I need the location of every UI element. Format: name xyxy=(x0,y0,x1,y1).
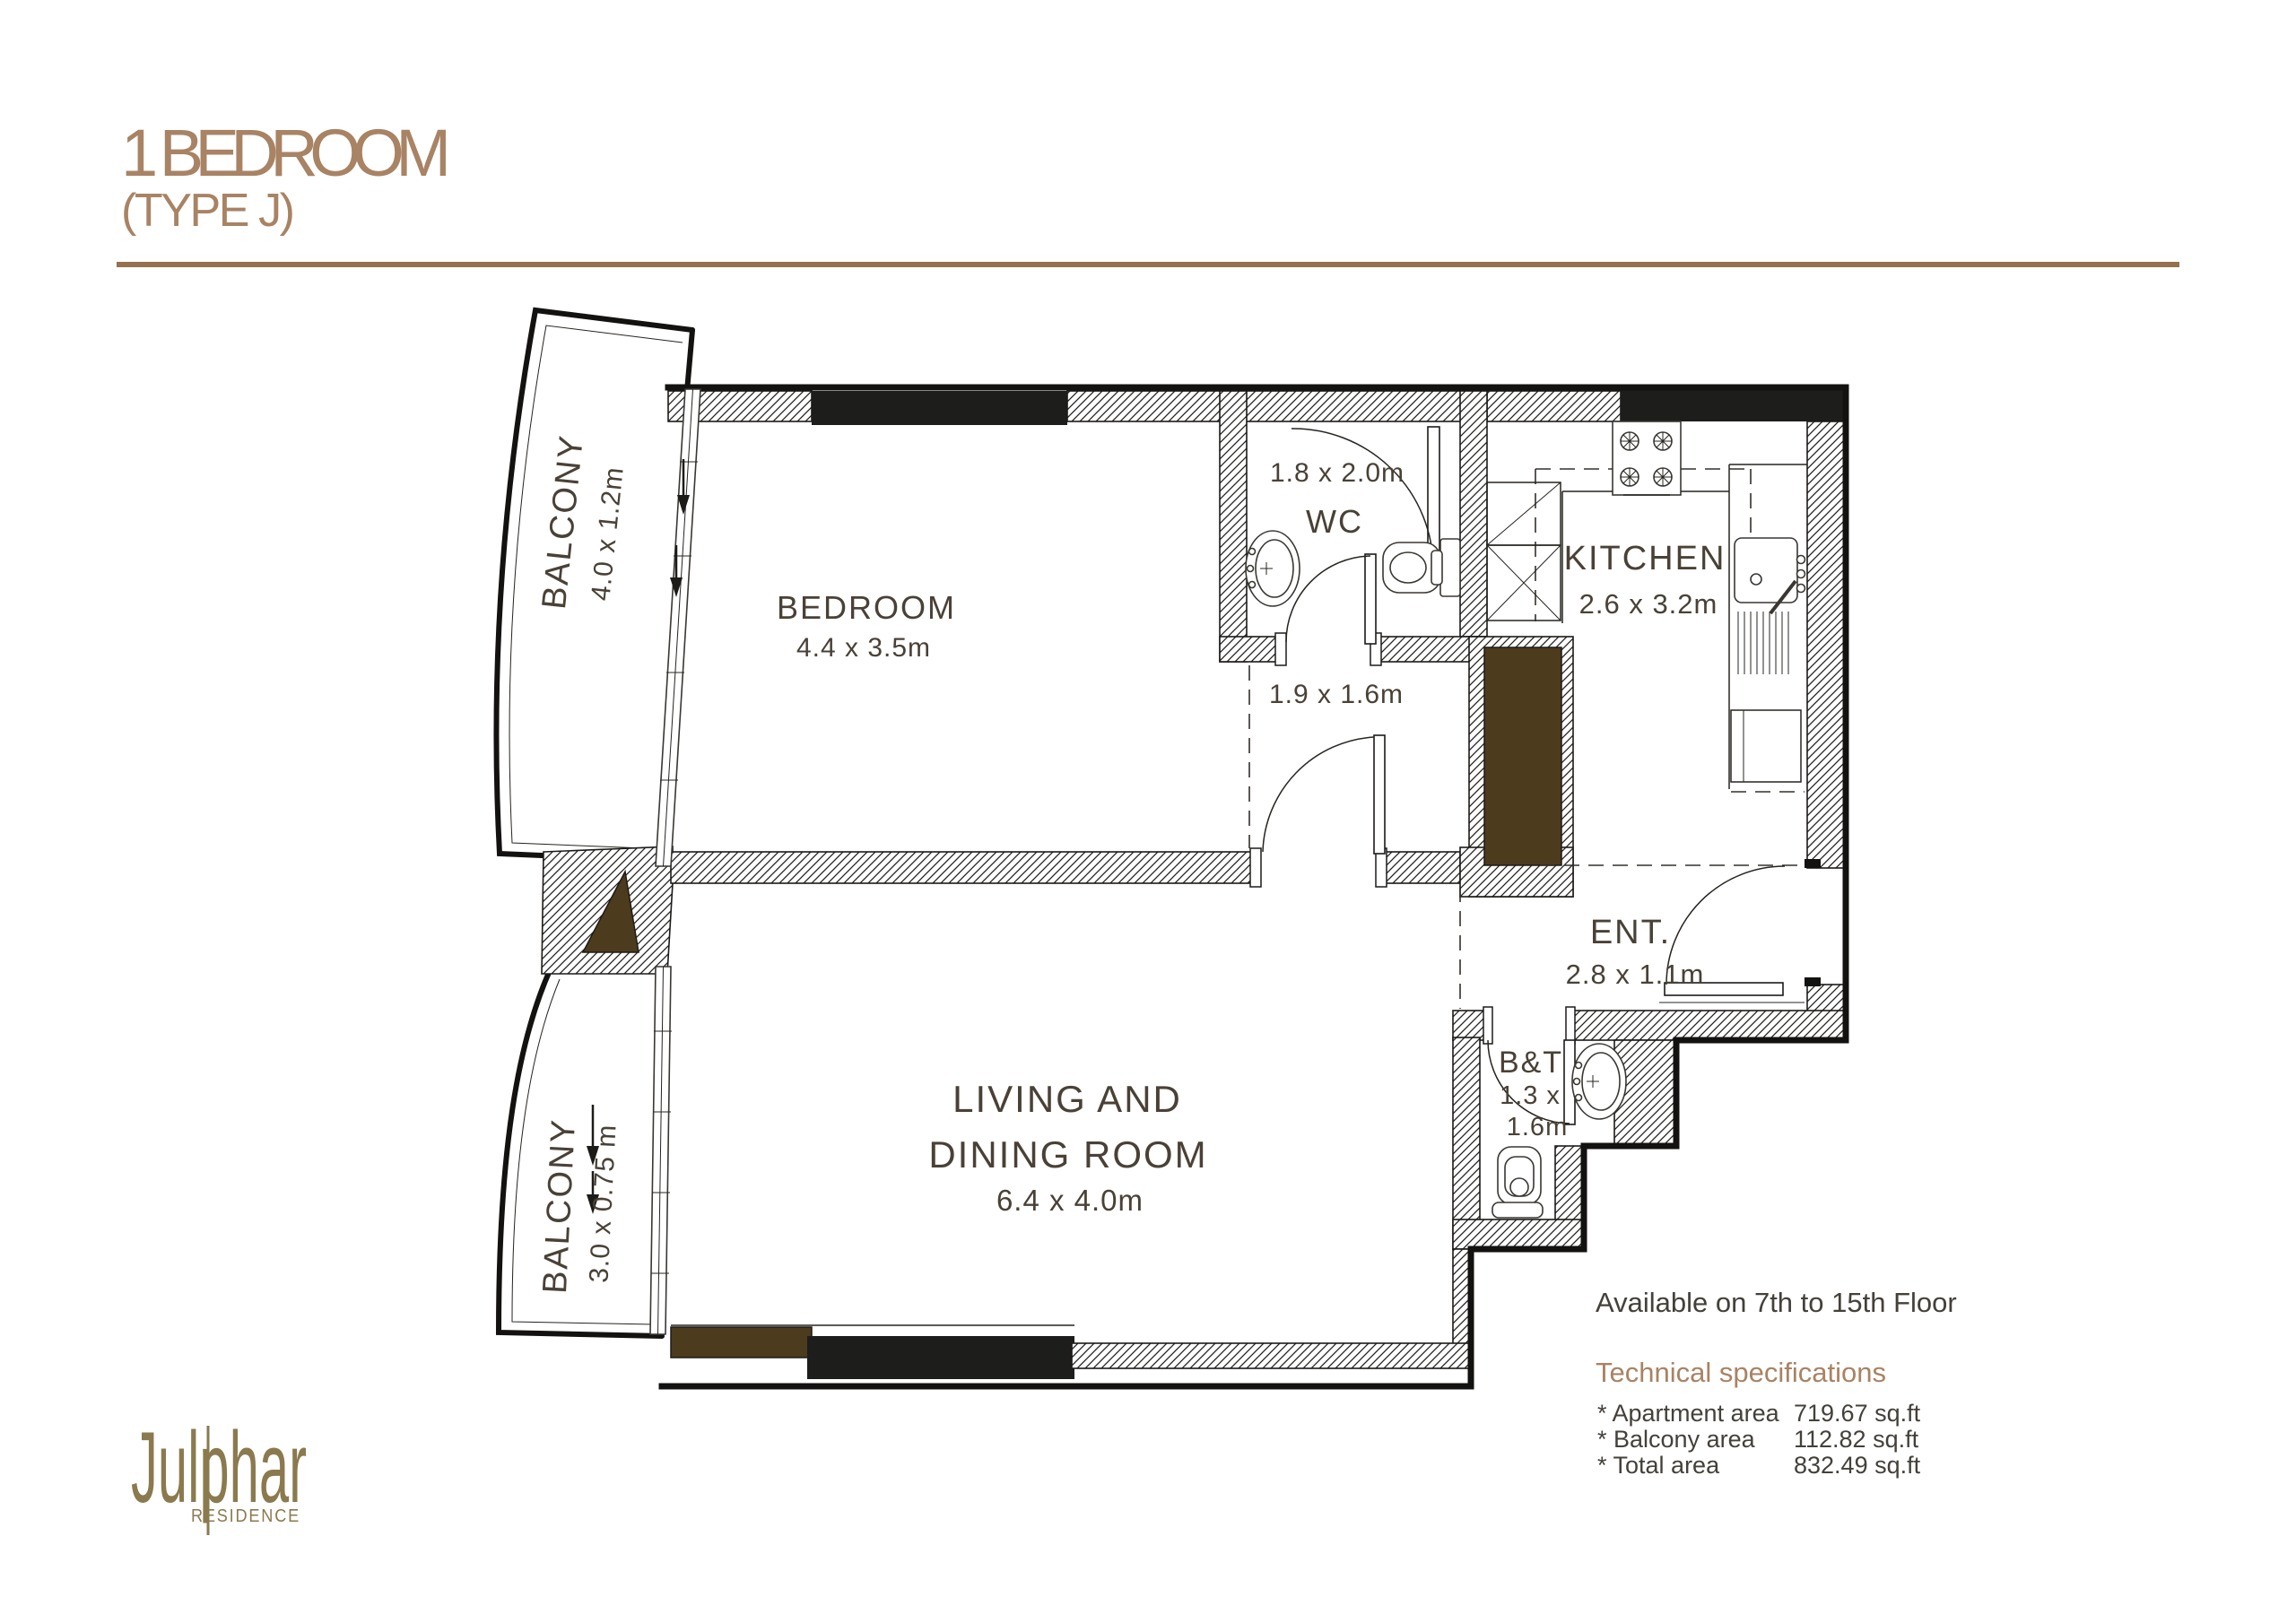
spec-row-value: 719.67 sq.ft xyxy=(1794,1400,1921,1427)
spec-row-label: * Apartment area xyxy=(1597,1400,1780,1427)
room-dims-corridor: 1.9 x 1.6m xyxy=(1269,680,1404,709)
room-label-bt: B&T xyxy=(1499,1046,1563,1080)
wc-toilet xyxy=(1383,539,1460,596)
room-dims-bt-2: 1.6m xyxy=(1507,1113,1568,1141)
spec-row-value: 112.82 sq.ft xyxy=(1794,1426,1919,1453)
header-rule xyxy=(117,262,2179,267)
brand-logo: Julphar RESIDENCE xyxy=(131,1411,307,1535)
room-label-wc: WC xyxy=(1306,503,1363,540)
south-wall xyxy=(671,1325,1471,1379)
floor-plan-canvas: 1 BEDROOM (TYPE J) xyxy=(0,0,2296,1623)
stove xyxy=(1613,421,1681,495)
room-label-living-2: DINING ROOM xyxy=(928,1133,1207,1176)
availability-note: Available on 7th to 15th Floor xyxy=(1596,1287,1957,1318)
notes: Available on 7th to 15th Floor Technical… xyxy=(1596,1287,1957,1479)
page-subtitle: (TYPE J) xyxy=(121,185,297,237)
bedroom-door xyxy=(1263,735,1385,854)
room-dims-living: 6.4 x 4.0m xyxy=(996,1184,1144,1217)
kitchen-drainboard xyxy=(1738,612,1788,674)
floor-plan-page: { "title": { "main": "1 BEDROOM", "sub":… xyxy=(0,0,2296,1623)
east-wall xyxy=(1805,421,1846,1040)
header: 1 BEDROOM (TYPE J) xyxy=(117,116,2179,267)
shaft-duct xyxy=(1484,647,1561,865)
room-dims-wc: 1.8 x 2.0m xyxy=(1270,458,1405,488)
service-shaft xyxy=(1460,637,1573,897)
living-window xyxy=(807,1336,1074,1379)
north-wall xyxy=(668,386,1846,425)
room-label-ent: ENT. xyxy=(1590,914,1671,951)
spec-row-value: 832.49 sq.ft xyxy=(1794,1452,1921,1479)
kitchen-sink xyxy=(1735,538,1805,613)
bedroom-south-wall xyxy=(671,848,1460,887)
specs-table: * Apartment area 719.67 sq.ft * Balcony … xyxy=(1597,1400,1921,1479)
room-label-bedroom: BEDROOM xyxy=(777,589,956,626)
page-title: 1 BEDROOM xyxy=(121,116,455,190)
room-dims-ent: 2.8 x 1.1m xyxy=(1566,959,1705,990)
balcony-lower-shell xyxy=(499,963,667,1336)
spec-row-label: * Balcony area xyxy=(1597,1426,1756,1453)
spec-row-label: * Total area xyxy=(1597,1452,1720,1479)
room-dims-bt-1: 1.3 x xyxy=(1500,1081,1561,1110)
balcony-junction-wall xyxy=(542,846,673,974)
kitchen-window xyxy=(1621,386,1846,421)
room-dims-bedroom: 4.4 x 3.5m xyxy=(796,633,931,663)
kitchen-cabinet xyxy=(1731,710,1801,782)
specs-heading: Technical specifications xyxy=(1596,1357,1886,1388)
room-label-kitchen: KITCHEN xyxy=(1564,540,1726,577)
room-label-living-1: LIVING AND xyxy=(952,1078,1182,1120)
bt-toilet xyxy=(1492,1147,1543,1218)
bedroom-window xyxy=(812,391,1067,425)
floor-plan: BEDROOM 4.4 x 3.5m 1.8 x 2.0m WC 1.9 x 1… xyxy=(496,310,1846,1386)
room-dims-kitchen: 2.6 x 3.2m xyxy=(1579,588,1718,620)
window-sill xyxy=(671,1327,812,1358)
